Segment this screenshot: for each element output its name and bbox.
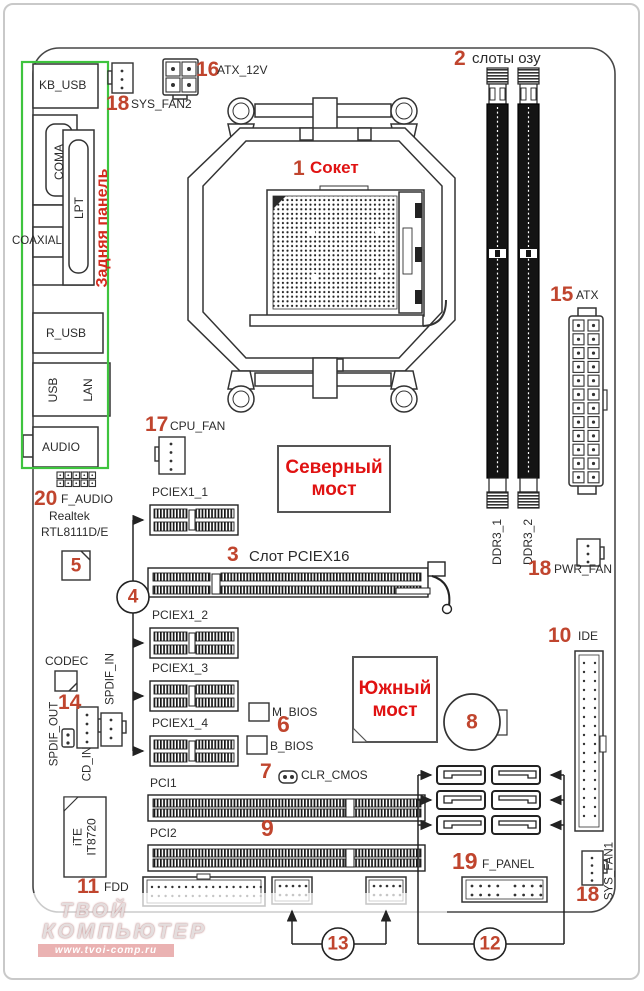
sys-fan2-header — [108, 63, 133, 93]
label-realtek: Realtek — [49, 510, 90, 522]
watermark-url: www.tvoi-comp.ru — [38, 944, 174, 957]
label-kb-usb: KB_USB — [39, 79, 86, 91]
label-f-panel: F_PANEL — [482, 858, 534, 870]
callout-15: 15 — [550, 284, 573, 305]
back-panel-title: Задняя панель — [95, 169, 111, 288]
callout-1: 1 — [293, 158, 305, 179]
callout-11: 11 — [77, 876, 99, 897]
atx-12v-connector — [163, 59, 198, 99]
north-bridge-label: Северный мост — [278, 446, 390, 512]
motherboard-diagram-page: KB_USB COMA LPT COAXIAL R_USB USB LAN AU… — [0, 0, 644, 991]
label-spdif-in: SPDIF_IN — [105, 653, 117, 705]
label-ram: слоты озу — [472, 51, 541, 66]
callout-18-sysfan2: 18 — [106, 93, 129, 114]
callout-8: 8 — [466, 712, 478, 733]
label-audio: AUDIO — [42, 441, 80, 453]
label-atx: ATX — [576, 289, 598, 301]
callout-4: 4 — [128, 588, 139, 607]
label-pciex1-4: PCIEX1_4 — [152, 717, 208, 729]
callout-13: 13 — [327, 935, 348, 954]
label-atx-12v: ATX_12V — [217, 64, 267, 76]
label-sys-fan2: SYS_FAN2 — [131, 98, 192, 110]
label-ide: IDE — [578, 630, 598, 642]
label-coma: COMA — [53, 144, 65, 180]
south-bridge-label: Южный мост — [353, 657, 437, 742]
io-chip-label: iTE IT8720 — [71, 818, 100, 855]
label-pciex1-2: PCIEX1_2 — [152, 609, 208, 621]
label-f-audio: F_AUDIO — [61, 493, 113, 505]
label-spdif-out: SPDIF_OUT — [49, 702, 61, 767]
callout-6: 6 — [277, 713, 290, 736]
callout-12: 12 — [479, 935, 500, 954]
label-pciex16: Слот PCIEX16 — [249, 549, 350, 564]
callout-3: 3 — [227, 544, 239, 565]
callout-18-pwrfan: 18 — [528, 558, 551, 579]
callout-2: 2 — [454, 48, 466, 69]
ide-connector-art — [575, 651, 606, 831]
atx-24pin-connector — [569, 308, 607, 494]
label-cd-in: CD_IN — [82, 747, 94, 782]
label-fdd: FDD — [104, 881, 129, 893]
label-b-bios: B_BIOS — [270, 740, 313, 752]
label-codec: CODEC — [45, 655, 88, 667]
label-sys-fan1: SYS_FAN1 — [604, 842, 616, 900]
callout-14: 14 — [58, 692, 81, 713]
callout-5: 5 — [71, 557, 82, 576]
label-cpu-fan: CPU_FAN — [170, 420, 225, 432]
label-lan: LAN — [82, 378, 94, 401]
callout-20: 20 — [34, 488, 57, 509]
label-pwr-fan: PWR_FAN — [554, 563, 612, 575]
label-ddr3-1: DDR3_1 — [491, 519, 503, 565]
callout-10: 10 — [548, 625, 571, 646]
label-lpt: LPT — [73, 197, 85, 219]
watermark-line2: КОМПЬЮТЕР — [42, 921, 207, 942]
label-coaxial: COAXIAL — [12, 236, 62, 248]
callout-16: 16 — [196, 59, 219, 80]
label-r-usb: R_USB — [46, 327, 86, 339]
label-pci1: PCI1 — [150, 777, 177, 789]
label-clr-cmos: CLR_CMOS — [301, 769, 368, 781]
f-panel-header-art — [462, 877, 547, 902]
label-usb: USB — [47, 378, 59, 403]
cpu-fan-header — [155, 437, 185, 474]
callout-18-sysfan1: 18 — [576, 884, 599, 905]
callout-9: 9 — [261, 817, 274, 840]
watermark-line1: ТВОЙ — [60, 901, 128, 921]
label-pci2: PCI2 — [150, 827, 177, 839]
callout-17: 17 — [145, 414, 168, 435]
callout-7: 7 — [260, 761, 272, 782]
callout-19: 19 — [452, 850, 478, 873]
label-pciex1-1: PCIEX1_1 — [152, 486, 208, 498]
label-rtl8111: RTL8111D/E — [41, 526, 108, 538]
label-socket: Сокет — [310, 159, 359, 176]
label-pciex1-3: PCIEX1_3 — [152, 662, 208, 674]
